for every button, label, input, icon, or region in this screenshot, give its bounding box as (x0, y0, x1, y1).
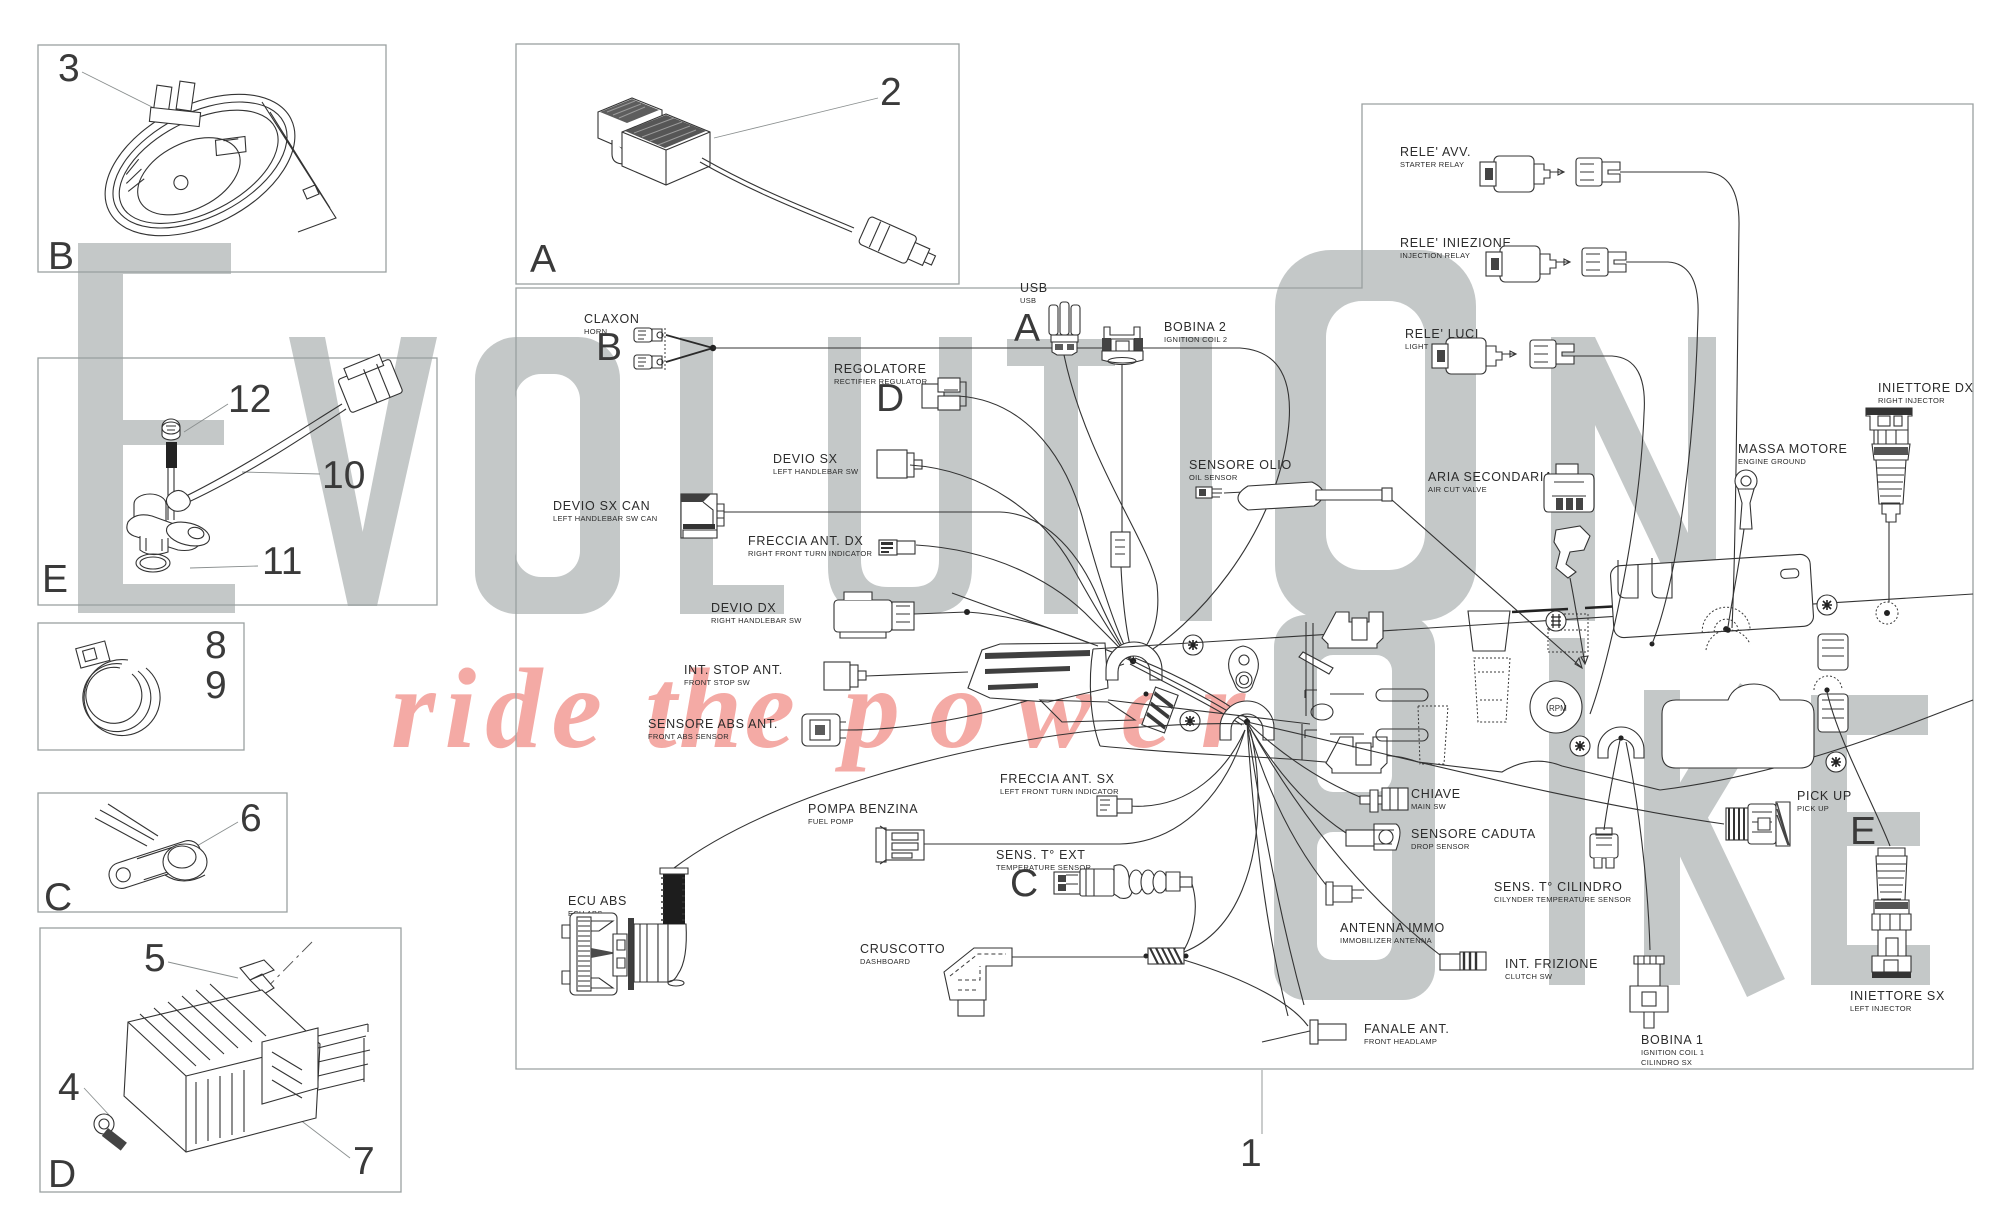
svg-text:LEFT HANDLEBAR SW: LEFT HANDLEBAR SW (773, 467, 859, 476)
svg-text:IGNITION COIL 1: IGNITION COIL 1 (1641, 1048, 1704, 1057)
svg-text:LEFT INJECTOR: LEFT INJECTOR (1850, 1004, 1912, 1013)
svg-text:SENS. T° CILINDRO: SENS. T° CILINDRO (1494, 880, 1623, 894)
svg-text:FRECCIA ANT. DX: FRECCIA ANT. DX (748, 534, 863, 548)
svg-text:DEVIO SX CAN: DEVIO SX CAN (553, 499, 650, 513)
svg-text:RELE' INIEZIONE: RELE' INIEZIONE (1400, 236, 1512, 250)
svg-text:FRONT STOP SW: FRONT STOP SW (684, 678, 751, 687)
svg-text:E: E (1850, 810, 1876, 853)
svg-text:2: 2 (880, 71, 902, 114)
svg-text:D: D (876, 377, 904, 420)
svg-text:ARIA SECONDARIA: ARIA SECONDARIA (1428, 470, 1553, 484)
svg-text:5: 5 (144, 937, 166, 980)
svg-text:FRECCIA ANT. SX: FRECCIA ANT. SX (1000, 772, 1115, 786)
svg-text:7: 7 (353, 1140, 375, 1183)
svg-text:CLAXON: CLAXON (584, 312, 640, 326)
svg-text:RIGHT INJECTOR: RIGHT INJECTOR (1878, 396, 1945, 405)
svg-text:ride: ride (391, 645, 602, 772)
svg-text:RIGHT FRONT TURN INDICATOR: RIGHT FRONT TURN INDICATOR (748, 549, 872, 558)
svg-text:RPM: RPM (1549, 704, 1567, 713)
svg-text:DEVIO SX: DEVIO SX (773, 452, 838, 466)
svg-text:AIR CUT VALVE: AIR CUT VALVE (1428, 485, 1487, 494)
svg-text:RIGHT HANDLEBAR SW: RIGHT HANDLEBAR SW (711, 616, 802, 625)
svg-text:BOBINA 1: BOBINA 1 (1641, 1033, 1704, 1047)
svg-text:1: 1 (1240, 1132, 1262, 1175)
svg-text:RELE' AVV.: RELE' AVV. (1400, 145, 1471, 159)
svg-text:11: 11 (262, 540, 303, 583)
svg-text:USB: USB (1020, 296, 1036, 305)
svg-text:INT. STOP ANT.: INT. STOP ANT. (684, 663, 783, 677)
svg-text:PICK UP: PICK UP (1797, 804, 1829, 813)
svg-text:OIL SENSOR: OIL SENSOR (1189, 473, 1238, 482)
svg-text:A: A (1014, 307, 1040, 350)
svg-text:DASHBOARD: DASHBOARD (860, 957, 910, 966)
svg-text:SENSORE CADUTA: SENSORE CADUTA (1411, 827, 1536, 841)
svg-text:IGNITION COIL 2: IGNITION COIL 2 (1164, 335, 1227, 344)
svg-text:INIETTORE DX: INIETTORE DX (1878, 381, 1974, 395)
svg-text:SENSORE ABS ANT.: SENSORE ABS ANT. (648, 717, 778, 731)
svg-text:FANALE ANT.: FANALE ANT. (1364, 1022, 1450, 1036)
svg-text:BOBINA 2: BOBINA 2 (1164, 320, 1227, 334)
svg-text:B: B (596, 326, 622, 369)
svg-text:3: 3 (58, 47, 80, 90)
svg-text:PICK UP: PICK UP (1797, 789, 1852, 803)
svg-text:A: A (530, 238, 556, 281)
svg-text:FUEL POMP: FUEL POMP (808, 817, 854, 826)
svg-text:ECU ABS: ECU ABS (568, 894, 627, 908)
svg-text:ENGINE GROUND: ENGINE GROUND (1738, 457, 1806, 466)
svg-text:POMPA BENZINA: POMPA BENZINA (808, 802, 918, 816)
svg-text:CILINDRO SX: CILINDRO SX (1641, 1058, 1692, 1067)
svg-text:10: 10 (322, 454, 365, 497)
svg-text:INIETTORE SX: INIETTORE SX (1850, 989, 1945, 1003)
svg-text:E: E (42, 558, 68, 601)
svg-text:DEVIO DX: DEVIO DX (711, 601, 776, 615)
svg-text:SENSORE OLIO: SENSORE OLIO (1189, 458, 1292, 472)
svg-text:D: D (48, 1153, 76, 1196)
svg-text:LEFT FRONT TURN INDICATOR: LEFT FRONT TURN INDICATOR (1000, 787, 1119, 796)
svg-text:C: C (1010, 862, 1038, 905)
svg-text:INJECTION RELAY: INJECTION RELAY (1400, 251, 1470, 260)
svg-text:CILYNDER TEMPERATURE SENSOR: CILYNDER TEMPERATURE SENSOR (1494, 895, 1632, 904)
svg-text:REGOLATORE: REGOLATORE (834, 362, 927, 376)
svg-text:4: 4 (58, 1066, 80, 1109)
svg-text:MASSA MOTORE: MASSA MOTORE (1738, 442, 1848, 456)
svg-text:9: 9 (205, 664, 227, 707)
svg-text:CLUTCH SW: CLUTCH SW (1505, 972, 1553, 981)
svg-text:DROP SENSOR: DROP SENSOR (1411, 842, 1470, 851)
svg-text:CHIAVE: CHIAVE (1411, 787, 1461, 801)
svg-text:ANTENNA IMMO: ANTENNA IMMO (1340, 921, 1445, 935)
svg-text:12: 12 (228, 378, 271, 421)
svg-text:FRONT HEADLAMP: FRONT HEADLAMP (1364, 1037, 1437, 1046)
svg-text:8: 8 (205, 624, 227, 667)
svg-text:B: B (48, 235, 74, 278)
svg-text:STARTER RELAY: STARTER RELAY (1400, 160, 1464, 169)
svg-text:MAIN SW: MAIN SW (1411, 802, 1447, 811)
svg-text:FRONT ABS SENSOR: FRONT ABS SENSOR (648, 732, 729, 741)
svg-text:SENS. T° EXT: SENS. T° EXT (996, 848, 1086, 862)
svg-text:USB: USB (1020, 281, 1048, 295)
svg-text:LEFT HANDLEBAR SW CAN: LEFT HANDLEBAR SW CAN (553, 514, 658, 523)
svg-text:CRUSCOTTO: CRUSCOTTO (860, 942, 945, 956)
svg-text:C: C (44, 876, 72, 919)
svg-text:6: 6 (240, 797, 262, 840)
svg-text:INT. FRIZIONE: INT. FRIZIONE (1505, 957, 1598, 971)
